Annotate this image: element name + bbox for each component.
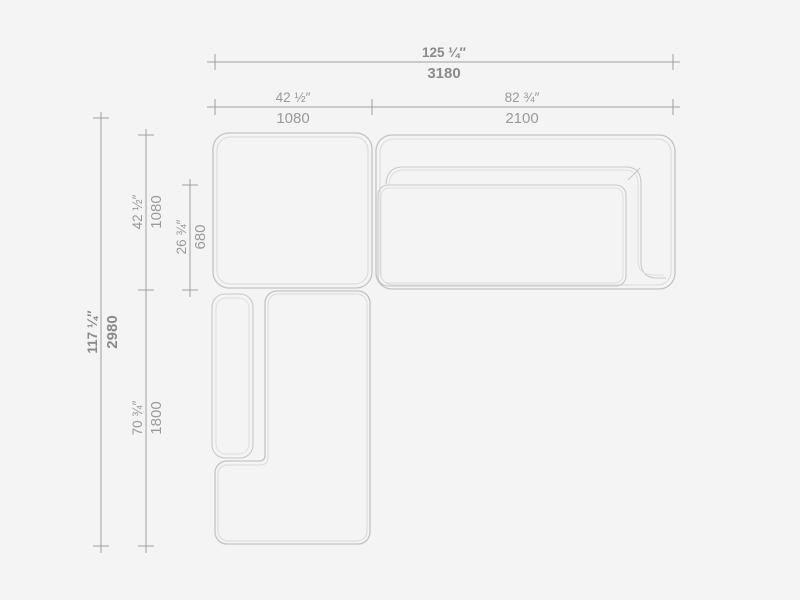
chaise-module-outline <box>215 291 370 544</box>
dimension-drawing: 125 ¼″ 3180 42 ½″ 1080 82 ¾″ 2100 117 ¼″… <box>0 0 800 600</box>
overall-width-inches-label: 125 ¼″ <box>422 45 467 60</box>
sofa-chaise-module <box>212 291 370 544</box>
right-section-mm-label: 2100 <box>505 110 538 127</box>
overall-depth-mm-label: 2980 <box>104 315 121 348</box>
corner-module-inner-outline <box>217 137 368 284</box>
seat-depth-inches-label: 26 ¾″ <box>174 219 189 254</box>
right-module-corner-seam <box>628 168 640 180</box>
right-module-inner-outline <box>380 139 671 285</box>
right-module-seat-cushion <box>378 185 626 286</box>
sofa-corner-module <box>213 133 372 288</box>
chaise-armrest <box>212 294 253 458</box>
dim-seat-depth: 26 ¾″ 680 <box>174 179 209 297</box>
corner-module-outline <box>213 133 372 288</box>
chaise-armrest-echo <box>216 298 249 454</box>
dim-overall-width: 125 ¼″ 3180 <box>207 45 680 82</box>
overall-width-mm-label: 3180 <box>427 65 460 82</box>
dim-overall-depth: 117 ¼″ 2980 <box>85 112 121 553</box>
dim-section-depths: 42 ½″ 1080 70 ¾″ 1800 <box>130 129 165 553</box>
right-section-inches-label: 82 ¾″ <box>505 90 540 105</box>
right-module-seat-cushion-echo <box>381 188 623 283</box>
top-section-depth-mm-label: 1080 <box>148 195 165 228</box>
chaise-length-mm-label: 1800 <box>148 401 165 434</box>
sofa-plan-drawing: 125 ¼″ 3180 42 ½″ 1080 82 ¾″ 2100 117 ¼″… <box>0 0 800 600</box>
left-section-mm-label: 1080 <box>276 110 309 127</box>
overall-depth-inches-label: 117 ¼″ <box>85 310 100 354</box>
right-module-backrest-line <box>386 167 666 278</box>
sofa-right-module <box>376 135 675 289</box>
chaise-module-inner-outline <box>218 294 367 541</box>
top-section-depth-inches-label: 42 ½″ <box>130 194 145 229</box>
seat-depth-mm-label: 680 <box>192 224 209 249</box>
chaise-length-inches-label: 70 ¾″ <box>130 400 145 435</box>
right-module-outline <box>376 135 675 289</box>
dim-section-widths: 42 ½″ 1080 82 ¾″ 2100 <box>207 90 680 127</box>
left-section-inches-label: 42 ½″ <box>276 90 311 105</box>
